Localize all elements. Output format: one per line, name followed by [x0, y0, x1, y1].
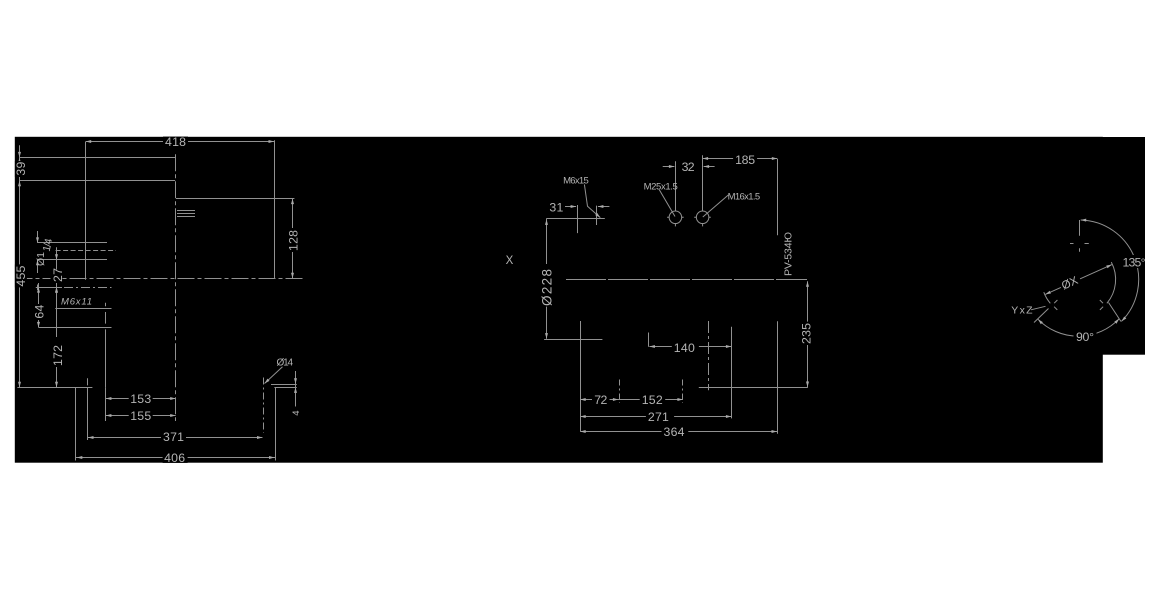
svg-text:Ø14: Ø14	[277, 357, 294, 368]
svg-text:4: 4	[291, 411, 302, 416]
svg-text:M25x1.5: M25x1.5	[644, 181, 678, 192]
svg-text:M16x1.5: M16x1.5	[728, 191, 761, 202]
svg-text:418: 418	[165, 135, 186, 149]
svg-text:152: 152	[642, 393, 663, 407]
svg-text:PV-534Ю: PV-534Ю	[783, 232, 795, 276]
svg-text:406: 406	[164, 451, 185, 465]
svg-text:271: 271	[648, 410, 669, 424]
svg-text:39: 39	[14, 161, 28, 175]
svg-text:235: 235	[799, 323, 813, 344]
svg-text:135°: 135°	[1123, 255, 1146, 269]
svg-text:M6x15: M6x15	[563, 175, 589, 186]
svg-text:Ø228: Ø228	[540, 269, 555, 306]
svg-text:31: 31	[549, 201, 563, 215]
svg-text:32: 32	[682, 160, 695, 174]
svg-text:27: 27	[51, 268, 65, 282]
svg-text:153: 153	[130, 392, 151, 406]
svg-text:YxZ: YxZ	[1011, 305, 1033, 317]
svg-text:X: X	[506, 255, 514, 267]
svg-text:90°: 90°	[1076, 330, 1094, 344]
svg-text:72: 72	[594, 393, 607, 407]
svg-text:155: 155	[130, 409, 151, 423]
svg-text:455: 455	[14, 265, 28, 286]
svg-text:364: 364	[664, 425, 685, 439]
svg-text:185: 185	[735, 153, 755, 167]
svg-text:128: 128	[286, 230, 300, 251]
svg-text:140: 140	[674, 341, 695, 355]
svg-text:172: 172	[51, 345, 65, 366]
svg-text:64: 64	[32, 304, 46, 318]
svg-text:371: 371	[163, 430, 184, 444]
svg-text:Ø1: Ø1	[35, 252, 47, 266]
svg-text:M6x11: M6x11	[61, 297, 92, 308]
